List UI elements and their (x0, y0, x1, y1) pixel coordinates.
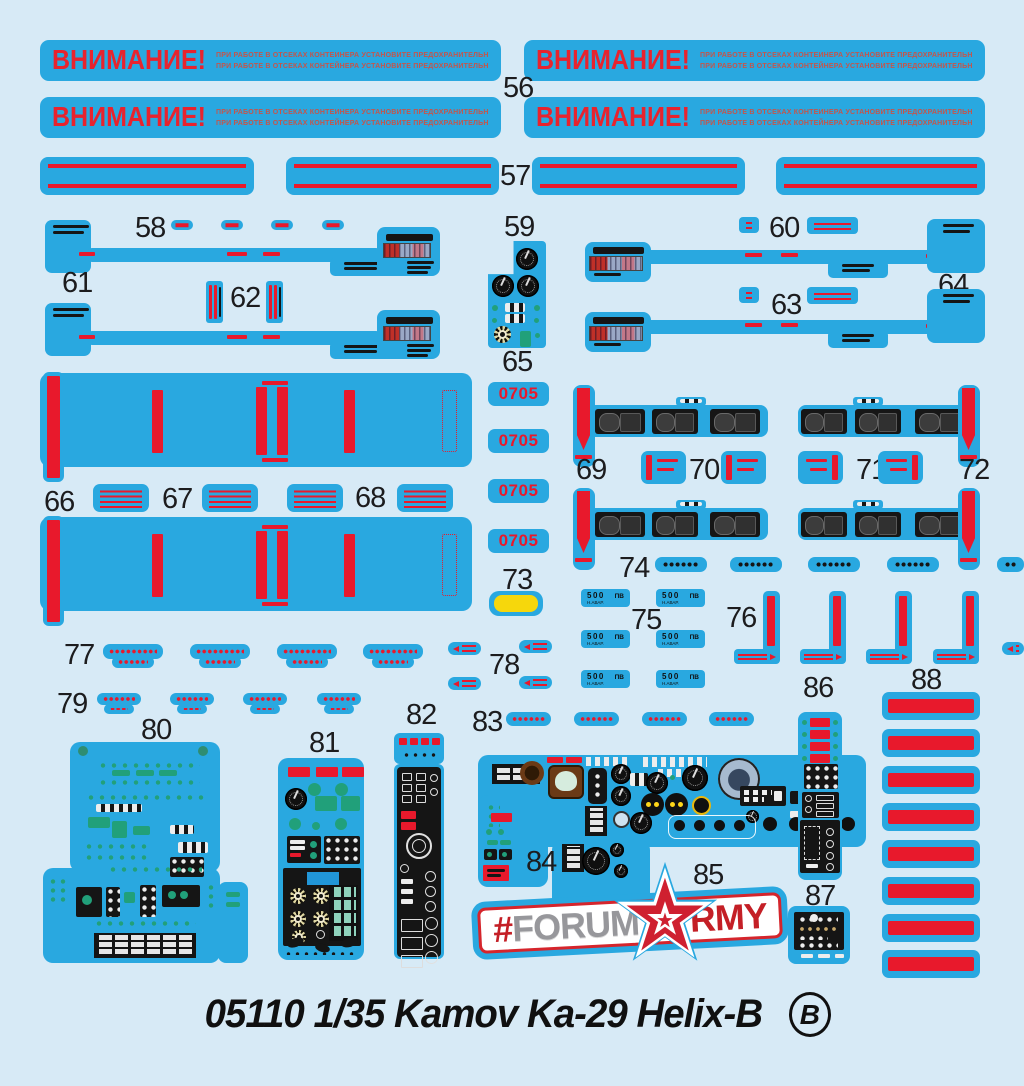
pill-500-sub: Н.АВАР. (587, 681, 604, 686)
decal-detail (140, 885, 156, 917)
decal-detail (486, 829, 492, 835)
marking-strip-62 (266, 281, 283, 323)
pill-500-value: 500 (662, 591, 680, 600)
decal-detail (442, 390, 457, 452)
decal-detail (890, 468, 907, 471)
warning-title: ВНИМАНИЕ! (536, 44, 690, 76)
grille-decal (93, 484, 149, 512)
gauge (611, 764, 631, 784)
decal-detail (168, 891, 176, 899)
knob-icon (313, 888, 329, 904)
decal-detail (79, 252, 95, 256)
dotted-pill-83 (642, 712, 687, 726)
arrow-icon (836, 654, 842, 660)
decal-detail (290, 853, 301, 857)
stripe-decal-88 (882, 692, 980, 720)
pill-500: 500Н.АВАР.ПВ (656, 630, 705, 648)
decal-detail (943, 300, 970, 303)
decal-detail (159, 770, 177, 776)
stripe-decal-88 (882, 877, 980, 905)
decal-detail (400, 864, 409, 873)
code-0705-decal: 0705 (488, 429, 549, 453)
pill-500-value: 500 (587, 672, 605, 681)
decal-detail (407, 349, 431, 352)
decal-detail (342, 767, 364, 777)
part-number-81: 81 (309, 729, 339, 758)
decal-detail (47, 520, 60, 622)
decal-detail (505, 314, 525, 323)
decal-detail (416, 795, 426, 803)
decal-detail (842, 269, 870, 272)
warning-decal: ВНИМАНИЕ! ПРИ РАБОТЕ В ОТСЕКАХ КОНТЕЙНЕР… (40, 97, 501, 138)
warning-title: ВНИМАНИЕ! (52, 101, 206, 133)
dotted-plate-79 (324, 704, 354, 714)
decal-detail (124, 892, 135, 903)
l-bracket-76-foot (800, 649, 846, 664)
decal-detail (279, 287, 281, 317)
decal-detail (670, 775, 675, 780)
warning-text-block: ПРИ РАБОТЕ В ОТСЕКАХ КОНТЕЙНЕРА УСТАНОВИ… (216, 109, 489, 127)
decal-detail (178, 842, 208, 853)
decal-detail (804, 764, 838, 789)
decal-detail (781, 323, 798, 327)
part-number-65: 65 (502, 348, 532, 377)
dotted-pill-74 (730, 557, 782, 572)
decal-detail (256, 531, 267, 599)
decal-detail (442, 534, 457, 596)
decal-detail (804, 654, 833, 660)
part-number-58: 58 (135, 214, 165, 243)
decal-detail (816, 795, 834, 801)
decal-detail (263, 252, 280, 256)
decal-detail (425, 934, 438, 947)
decal-detail (575, 558, 592, 562)
decal-detail (842, 339, 870, 342)
part-number-83: 83 (472, 708, 502, 737)
decal-detail (833, 596, 841, 646)
decal-detail (262, 602, 288, 606)
decal-detail (800, 820, 840, 873)
arrow-icon (770, 654, 776, 660)
decal-detail (402, 773, 412, 781)
decal-detail (416, 784, 426, 792)
pill-500-sub: Н.АВАР. (662, 681, 679, 686)
decal-detail (794, 912, 844, 950)
decal-detail (110, 867, 202, 872)
decal-detail (738, 654, 767, 660)
dotted-pill-83 (506, 712, 551, 726)
decal-detail (810, 742, 830, 751)
decal-detail (430, 774, 438, 782)
gauge (520, 761, 544, 785)
decal-detail (308, 783, 321, 796)
part-number-74: 74 (619, 554, 649, 583)
decal-detail (88, 795, 208, 800)
decal-detail (96, 921, 196, 926)
decal-detail (288, 767, 310, 777)
l-bracket-76-foot (734, 649, 780, 664)
decal-detail (832, 455, 838, 480)
decal-detail (491, 813, 512, 822)
decal-detail (214, 285, 217, 319)
warning-text-line: ПРИ РАБОТЕ В ОТСЕКАХ КОНТЕЙНЕРА УСТАНОВИ… (700, 120, 973, 127)
decal-detail (960, 558, 977, 562)
decal-detail (412, 839, 426, 853)
decal-detail (226, 892, 240, 897)
decal-detail (810, 718, 830, 727)
part-number-79: 79 (57, 690, 87, 719)
decal-detail (425, 871, 436, 882)
decal-detail (53, 308, 89, 311)
decal-detail (802, 792, 839, 818)
decal-detail (498, 829, 504, 835)
decal-detail (842, 264, 874, 267)
decal-detail (152, 534, 163, 597)
pill-500-sub: Н.АВАР. (587, 641, 604, 646)
decal-detail (290, 846, 305, 850)
decal-detail (425, 886, 436, 897)
decal-detail (781, 253, 798, 257)
decal-detail (402, 784, 412, 792)
decal-detail (425, 917, 438, 930)
mini-panel-59 (488, 241, 546, 348)
decal-detail (833, 732, 838, 737)
decal-detail (966, 596, 974, 646)
decal-detail (801, 954, 813, 958)
screw-icon (198, 746, 208, 756)
decal-detail (937, 654, 966, 660)
grille-decal (202, 484, 258, 512)
decal-detail (100, 780, 200, 785)
console-panel-81 (278, 758, 364, 960)
decal-detail (594, 273, 621, 276)
pill-decal-58 (171, 220, 193, 230)
pill-500: 500Н.АВАР.ПВ (656, 670, 705, 688)
stripe-decal-88 (882, 729, 980, 757)
part-number-57: 57 (500, 162, 530, 191)
pill-500: 500Н.АВАР.ПВ (581, 589, 630, 607)
decal-detail (180, 891, 188, 899)
part-number-56: 56 (503, 74, 533, 103)
decal-detail (798, 934, 828, 940)
dotted-plate-77 (199, 656, 241, 668)
part-number-76: 76 (726, 604, 756, 633)
instrument-decal (801, 512, 847, 537)
gauge (665, 793, 688, 816)
instrument-decal (652, 409, 698, 434)
decal-detail (826, 828, 834, 836)
pill-500-value: 500 (662, 672, 680, 681)
gauge (516, 248, 538, 270)
arrow-icon (524, 680, 530, 686)
decal-detail (802, 756, 807, 761)
decal-detail (312, 822, 320, 830)
decal-detail (401, 955, 423, 968)
grille-decal (287, 484, 343, 512)
dotted-plate-79 (177, 704, 207, 714)
decal-detail (943, 230, 970, 233)
decal-detail (943, 294, 974, 297)
instrument-decal (710, 409, 760, 434)
warning-text-block: ПРИ РАБОТЕ В ОТСЕКАХ КОНТЕЙНЕРА УСТАНОВИ… (700, 52, 973, 70)
decal-detail (744, 790, 772, 795)
l-bracket-76-foot (866, 649, 912, 664)
warning-decal: ВНИМАНИЕ! ПРИ РАБОТЕ В ОТСЕКАХ КОНТЕЙНЕР… (40, 40, 501, 81)
decal-detail (674, 820, 685, 831)
warning-title: ВНИМАНИЕ! (52, 44, 206, 76)
decal-detail (263, 335, 280, 339)
decal-detail (826, 840, 834, 848)
decal-detail (227, 335, 247, 339)
decal-detail (47, 376, 60, 478)
part-number-59: 59 (504, 213, 534, 242)
decal-detail (316, 930, 325, 939)
dotted-plate-77 (372, 656, 414, 668)
gauge (630, 812, 652, 834)
stripe-decal-88 (882, 840, 980, 868)
decal-detail (943, 224, 974, 227)
decal-detail (462, 645, 476, 652)
indicator-pill (721, 451, 766, 484)
decal-detail (397, 767, 441, 957)
decal-detail (344, 534, 355, 597)
decal-detail (804, 826, 820, 860)
decal-detail (833, 756, 838, 761)
arrow-icon (453, 681, 459, 687)
decal-detail (835, 954, 844, 958)
decal-detail (310, 852, 317, 859)
decal-detail (401, 919, 423, 932)
decal-detail (745, 253, 762, 257)
pill-500-unit: ПВ (615, 593, 624, 600)
part-number-78: 78 (489, 651, 519, 680)
pill-500-unit: ПВ (690, 634, 699, 641)
decal-detail (401, 822, 416, 830)
decal-detail (810, 914, 818, 922)
sheet-letter-badge: B (789, 992, 831, 1037)
decal-detail (262, 525, 288, 529)
decal-detail (763, 817, 777, 831)
warning-text-line: ПРИ РАБОТЕ В ОТСЕКАХ КОНТЕЙНЕРА УСТАНОВИ… (700, 109, 973, 116)
decal-detail (79, 335, 95, 339)
decal-detail (816, 811, 834, 817)
knob-icon (290, 911, 306, 927)
decal-detail (857, 399, 879, 403)
part-number-60: 60 (769, 214, 799, 243)
decal-detail (802, 732, 807, 737)
decal-detail (833, 744, 838, 749)
pill-500-sub: Н.АВАР. (662, 641, 679, 646)
pill-500: 500Н.АВАР.ПВ (581, 630, 630, 648)
decal-detail (53, 231, 84, 234)
instrument-decal (383, 243, 431, 258)
decal-detail (401, 937, 423, 950)
part-number-67: 67 (162, 485, 192, 514)
logo-hash: # (492, 908, 513, 951)
pill-500-value: 500 (587, 591, 605, 600)
decal-detail (432, 738, 440, 745)
decal-detail (533, 643, 547, 650)
stripe-decal-57 (776, 157, 985, 195)
part-number-62: 62 (230, 284, 260, 313)
decal-detail (133, 826, 150, 835)
decal-detail (680, 502, 702, 506)
pill-decal-58 (322, 220, 344, 230)
decal-detail (745, 323, 762, 327)
decal-detail (386, 234, 433, 241)
decal-sheet: ВНИМАНИЕ! ПРИ РАБОТЕ В ОТСЕКАХ КОНТЕЙНЕР… (0, 0, 1024, 1086)
decal-detail (737, 459, 758, 462)
indicator-pill (798, 451, 843, 484)
dotted-pill-74 (887, 557, 939, 572)
decal-detail (96, 804, 142, 812)
decal-detail (857, 502, 879, 506)
warning-text-line: ПРИ РАБОТЕ В ОТСЕКАХ КОНТЕЙНЕРА УСТАНОВИ… (700, 52, 973, 59)
warning-decal: ВНИМАНИЕ! ПРИ РАБОТЕ В ОТСЕКАХ КОНТЕЙНЕР… (524, 40, 985, 81)
instrument-decal (589, 326, 643, 341)
decal-detail (714, 820, 725, 831)
part-number-68: 68 (355, 484, 385, 513)
decal-detail (534, 318, 539, 323)
stripe-pill (807, 217, 858, 234)
decal-detail (425, 901, 436, 912)
dotted-pill-74 (808, 557, 860, 572)
decal-detail (335, 783, 348, 796)
decal-detail (421, 738, 429, 745)
decal-detail (842, 334, 874, 337)
marking-strip-62 (206, 281, 223, 323)
knob-icon (313, 911, 329, 927)
pill-500-value: 500 (662, 632, 680, 641)
pill-500-sub: Н.АВАР. (662, 600, 679, 605)
knob-icon (692, 796, 711, 815)
instrument-decal (383, 326, 431, 341)
part-number-72: 72 (959, 456, 989, 485)
decal-detail (256, 387, 267, 455)
decal-detail (818, 954, 830, 958)
decal-detail (88, 817, 110, 828)
attitude-indicator (548, 765, 584, 799)
decal-detail (344, 390, 355, 453)
decal-detail (534, 305, 540, 311)
stripe-decal-88 (882, 950, 980, 978)
gauge (613, 811, 630, 828)
decal-detail (407, 271, 428, 274)
decal-detail (287, 836, 321, 863)
part-number-80: 80 (141, 716, 171, 745)
stripe-decal-57 (40, 157, 254, 195)
pill-500-sub: Н.АВАР. (587, 600, 604, 605)
dotted-plate-77 (286, 656, 328, 668)
warning-decal: ВНИМАНИЕ! ПРИ РАБОТЕ В ОТСЕКАХ КОНТЕЙНЕР… (524, 97, 985, 138)
star-icon: ★ (656, 910, 674, 930)
decal-detail (726, 455, 732, 480)
decal-detail (870, 654, 899, 660)
grille-decal (397, 484, 453, 512)
decal-detail (277, 387, 288, 455)
decal-detail (805, 806, 812, 813)
decal-detail (430, 788, 438, 796)
knob-icon (290, 888, 306, 904)
decal-detail (226, 902, 240, 907)
decal-detail (492, 318, 497, 323)
dotted-pill-74 (655, 557, 707, 572)
instrument-decal (652, 512, 698, 537)
code-0705-decal: 0705 (488, 382, 549, 406)
decal-detail (344, 267, 377, 270)
part-number-88: 88 (911, 666, 941, 695)
pill-500-unit: ПВ (690, 593, 699, 600)
part-number-70: 70 (689, 456, 719, 485)
decal-detail (744, 797, 764, 802)
decal-detail (841, 817, 855, 831)
forumarmy-logo: #FORUMRMY ★ ★ ★ ★ ★ (468, 845, 808, 995)
instrument-decal (595, 409, 645, 434)
gauge (682, 765, 708, 791)
decal-detail (734, 820, 745, 831)
decal-detail (657, 468, 674, 471)
decal-detail (86, 844, 148, 849)
code-0705-decal: 0705 (488, 479, 549, 503)
decal-detail (520, 331, 531, 347)
keypad-panel (283, 868, 361, 946)
gauge (492, 275, 514, 297)
part-number-69: 69 (576, 456, 606, 485)
decal-detail (401, 879, 413, 884)
panel-strip-60-block (927, 219, 985, 273)
decal-detail (680, 399, 702, 403)
decal-detail (806, 864, 818, 868)
decal-detail (899, 596, 907, 646)
lamp-panel-87 (788, 906, 850, 964)
stripe-decal-57 (532, 157, 745, 195)
stripe-decal-57 (286, 157, 499, 195)
switch-bank (94, 933, 196, 958)
decal-detail (407, 266, 431, 269)
decal-detail (206, 883, 218, 911)
decal-detail (136, 770, 154, 776)
decal-detail (219, 287, 221, 317)
decal-detail (227, 252, 247, 256)
decal-detail (112, 821, 127, 838)
decal-detail (798, 915, 838, 923)
screw-icon (78, 746, 88, 756)
decal-detail (810, 754, 830, 763)
decal-detail (407, 344, 434, 347)
decal-detail (290, 840, 305, 844)
instrument-decal (855, 409, 901, 434)
decal-detail (152, 390, 163, 453)
decal-detail (48, 877, 68, 905)
decal-detail (767, 596, 775, 646)
decal-detail (774, 791, 782, 801)
decal-detail (344, 350, 377, 353)
decal-detail (1016, 645, 1019, 652)
part-number-77: 77 (64, 641, 94, 670)
decal-detail (386, 317, 433, 324)
decal-detail (547, 757, 563, 763)
decal-detail (86, 855, 148, 860)
arrow-icon (524, 644, 530, 650)
decal-detail (53, 225, 89, 228)
pill-500-unit: ПВ (615, 634, 624, 641)
decal-detail (593, 317, 644, 324)
decal-detail (289, 818, 301, 830)
instrument-decal (801, 409, 847, 434)
decal-detail (341, 796, 360, 811)
part-number-63: 63 (771, 291, 801, 320)
arrow-pill-78 (519, 676, 552, 689)
